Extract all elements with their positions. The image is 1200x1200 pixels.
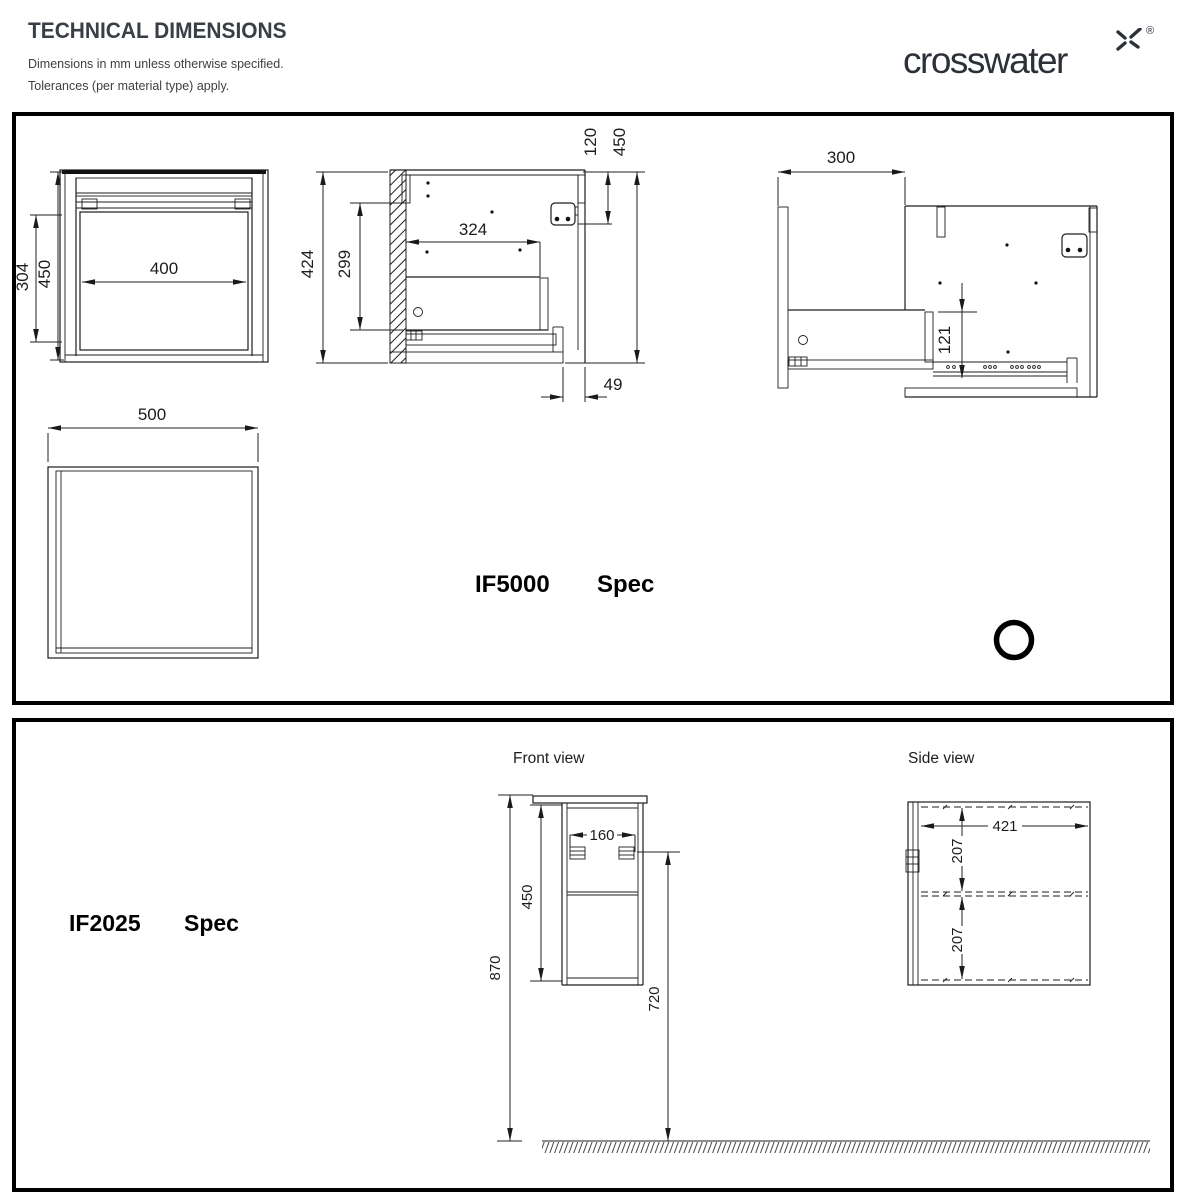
if5000-plan-view-drawing: 500 — [48, 405, 258, 658]
if2025-spec-panel: Front view Side view IF2025 Spec — [12, 718, 1174, 1192]
dim-wall-to-front: 300 — [827, 148, 855, 167]
subtitle-line-2: Tolerances (per material type) apply. — [28, 79, 300, 93]
if2025-drawings: Front view Side view IF2025 Spec — [16, 722, 1170, 1188]
dim-bracket-spacing: 160 — [589, 827, 614, 844]
crosswater-logo: crosswater ® — [903, 40, 1163, 90]
if2025-spec-label: Spec — [184, 910, 239, 936]
floor-hatching — [542, 1142, 1150, 1153]
registered-trademark: ® — [1146, 25, 1154, 37]
dim-front-height: 450 — [35, 260, 54, 288]
page-title: TECHNICAL DIMENSIONS — [28, 18, 287, 44]
dim-section-inner-height: 299 — [335, 250, 354, 278]
side-view-label: Side view — [908, 750, 975, 767]
dim-floor-clearance: 720 — [646, 986, 663, 1011]
brand-wordmark: crosswater — [903, 40, 1067, 81]
if2025-side-view-drawing: 421 207 207 — [906, 802, 1090, 985]
subtitle-line-1: Dimensions in mm unless otherwise specif… — [28, 57, 300, 71]
if5000-drawings: 400 450 304 — [16, 116, 1170, 701]
dim-hinge-offset: 120 — [581, 128, 600, 156]
dim-bottom-section: 207 — [949, 927, 966, 952]
dim-plan-width: 500 — [138, 405, 166, 424]
dim-top-section: 207 — [949, 838, 966, 863]
if5000-spec-label: Spec — [597, 571, 654, 598]
o-ring-mark — [997, 623, 1032, 658]
dim-front-opening-height: 304 — [16, 263, 32, 291]
dim-section-height: 424 — [298, 250, 317, 278]
dim-side-depth: 421 — [992, 818, 1017, 835]
if2025-front-view-drawing: 160 450 870 720 — [487, 795, 1150, 1153]
if5000-model-label: IF5000 — [475, 571, 550, 598]
dim-overall-height: 870 — [487, 955, 504, 980]
if2025-model-label: IF2025 — [69, 910, 141, 936]
header: TECHNICAL DIMENSIONS Dimensions in mm un… — [28, 18, 300, 93]
if5000-side-section-drawing: 424 299 324 120 450 49 — [298, 128, 645, 402]
crosswater-x-icon — [1115, 28, 1143, 52]
dim-section-overall-height: 450 — [610, 128, 629, 156]
dim-section-depth: 324 — [459, 220, 487, 239]
front-view-label: Front view — [513, 750, 585, 767]
if5000-side-open-drawing: 300 — [778, 148, 1097, 397]
dim-front-width: 400 — [150, 259, 178, 278]
if5000-front-view-drawing: 400 450 304 — [16, 170, 268, 362]
dim-cabinet-height: 450 — [519, 884, 536, 909]
technical-dimensions-page: TECHNICAL DIMENSIONS Dimensions in mm un… — [0, 0, 1200, 1200]
if5000-spec-panel: 400 450 304 — [12, 112, 1174, 705]
dim-bottom-offset: 49 — [604, 375, 623, 394]
dim-rail-height: 121 — [935, 326, 954, 354]
